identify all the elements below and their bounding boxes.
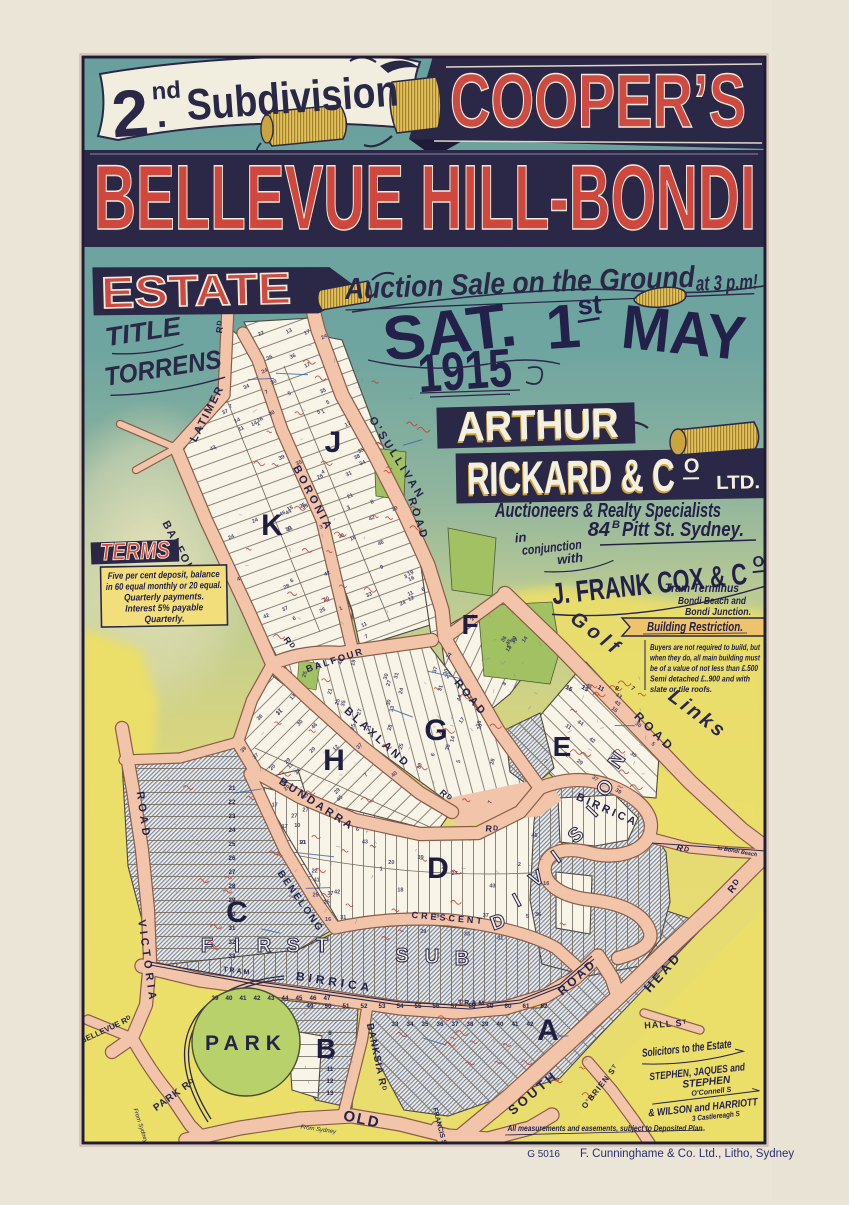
svg-text:27: 27 bbox=[291, 813, 297, 819]
svg-text:2: 2 bbox=[518, 862, 521, 868]
svg-text:57: 57 bbox=[451, 1003, 458, 1010]
svg-text:D: D bbox=[427, 852, 449, 885]
svg-text:U: U bbox=[425, 946, 439, 968]
svg-text:27: 27 bbox=[452, 871, 458, 877]
svg-text:21: 21 bbox=[229, 785, 236, 792]
svg-text:10: 10 bbox=[299, 840, 305, 846]
svg-text:F: F bbox=[461, 609, 478, 640]
svg-text:when they do, all main buildin: when they do, all main building must bbox=[650, 653, 761, 663]
svg-text:25: 25 bbox=[313, 892, 319, 898]
svg-text:61: 61 bbox=[523, 1003, 530, 1010]
svg-text:28: 28 bbox=[229, 883, 236, 890]
svg-text:17: 17 bbox=[282, 824, 288, 830]
svg-text:39: 39 bbox=[418, 855, 424, 861]
svg-text:31: 31 bbox=[497, 935, 503, 941]
svg-text:B: B bbox=[455, 948, 469, 970]
svg-text:I: I bbox=[234, 935, 240, 957]
svg-text:42: 42 bbox=[527, 1021, 534, 1028]
svg-text:O: O bbox=[684, 455, 700, 477]
svg-text:K: K bbox=[261, 509, 283, 542]
svg-text:B: B bbox=[612, 519, 620, 531]
svg-text:st: st bbox=[577, 289, 603, 321]
svg-text:47: 47 bbox=[324, 995, 331, 1002]
svg-text:43: 43 bbox=[268, 995, 275, 1002]
svg-text:17: 17 bbox=[272, 802, 278, 808]
svg-text:54: 54 bbox=[397, 1003, 404, 1010]
svg-text:36: 36 bbox=[437, 1021, 444, 1028]
svg-text:O: O bbox=[752, 553, 766, 571]
svg-text:F. Cunninghame & Co. Ltd., Lit: F. Cunninghame & Co. Ltd., Litho, Sydney bbox=[580, 1148, 794, 1160]
svg-text:29: 29 bbox=[420, 929, 426, 935]
svg-text:53: 53 bbox=[379, 1003, 386, 1010]
svg-text:42: 42 bbox=[334, 889, 340, 895]
svg-text:Semi detached £..900 and with: Semi detached £..900 and with bbox=[650, 674, 750, 684]
svg-text:Bondi Junction.: Bondi Junction. bbox=[685, 606, 751, 618]
svg-text:40: 40 bbox=[226, 995, 233, 1002]
svg-text:38: 38 bbox=[467, 1021, 474, 1028]
svg-text:COOPER’S: COOPER’S bbox=[450, 59, 746, 144]
svg-text:Pitt St. Sydney.: Pitt St. Sydney. bbox=[622, 519, 744, 541]
svg-text:ARTHUR: ARTHUR bbox=[456, 399, 619, 450]
svg-text:36: 36 bbox=[535, 912, 541, 918]
svg-text:S: S bbox=[286, 935, 299, 957]
svg-text:31: 31 bbox=[340, 915, 346, 921]
svg-text:A: A bbox=[537, 1014, 559, 1047]
svg-text:F: F bbox=[201, 935, 213, 957]
svg-text:20: 20 bbox=[388, 860, 394, 866]
svg-text:MAY: MAY bbox=[618, 293, 749, 375]
svg-text:All measurements and easements: All measurements and easements, subject … bbox=[507, 1124, 703, 1133]
svg-text:TRAM: TRAM bbox=[458, 1000, 486, 1008]
svg-text:33: 33 bbox=[392, 1021, 399, 1028]
svg-text:12: 12 bbox=[327, 1078, 334, 1085]
svg-text:27: 27 bbox=[302, 807, 308, 813]
svg-text:LTD.: LTD. bbox=[716, 472, 760, 494]
svg-text:46: 46 bbox=[531, 833, 537, 839]
svg-text:6: 6 bbox=[356, 827, 359, 833]
svg-text:2: 2 bbox=[109, 75, 151, 151]
svg-text:E: E bbox=[553, 731, 572, 762]
svg-text:25: 25 bbox=[324, 899, 330, 905]
svg-text:J: J bbox=[325, 426, 342, 459]
svg-text:59: 59 bbox=[487, 1003, 494, 1010]
svg-text:ESTATE: ESTATE bbox=[100, 264, 291, 318]
svg-text:Tram Terminus: Tram Terminus bbox=[665, 581, 739, 595]
svg-text:52: 52 bbox=[361, 1003, 368, 1010]
svg-text:Building Restriction.: Building Restriction. bbox=[647, 620, 743, 634]
svg-text:49: 49 bbox=[307, 1003, 314, 1010]
svg-text:62: 62 bbox=[541, 1003, 548, 1010]
svg-text:44: 44 bbox=[282, 995, 289, 1002]
svg-text:46: 46 bbox=[310, 995, 317, 1002]
svg-text:56: 56 bbox=[433, 1003, 440, 1010]
svg-text:H: H bbox=[323, 744, 345, 777]
svg-text:PARK: PARK bbox=[205, 1032, 287, 1055]
svg-text:G: G bbox=[424, 714, 447, 747]
svg-text:35: 35 bbox=[422, 1021, 429, 1028]
svg-text:51: 51 bbox=[343, 1003, 350, 1010]
svg-text:40: 40 bbox=[497, 1021, 504, 1028]
svg-text:25: 25 bbox=[229, 841, 236, 848]
svg-text:60: 60 bbox=[505, 1003, 512, 1010]
svg-text:13: 13 bbox=[327, 1090, 334, 1097]
svg-text:41: 41 bbox=[512, 1021, 519, 1028]
svg-text:Buyers are not required to bui: Buyers are not required to build, but bbox=[650, 642, 761, 652]
svg-text:22: 22 bbox=[229, 799, 236, 806]
svg-text:42: 42 bbox=[254, 995, 261, 1002]
svg-text:C: C bbox=[226, 896, 248, 929]
svg-text:Interest 5% payable: Interest 5% payable bbox=[125, 602, 204, 614]
svg-text:11: 11 bbox=[327, 1066, 334, 1073]
svg-text:24: 24 bbox=[229, 827, 236, 834]
svg-text:10: 10 bbox=[294, 823, 300, 829]
svg-text:41: 41 bbox=[314, 877, 320, 883]
svg-text:with: with bbox=[556, 550, 583, 568]
svg-text:84: 84 bbox=[588, 519, 610, 541]
svg-text:23: 23 bbox=[229, 813, 236, 820]
svg-text:B: B bbox=[316, 1033, 336, 1064]
svg-text:26: 26 bbox=[229, 855, 236, 862]
svg-text:18: 18 bbox=[397, 887, 403, 893]
svg-text:Quarterly.: Quarterly. bbox=[144, 614, 184, 626]
svg-text:be of a value of not less than: be of a value of not less than £.500 bbox=[650, 663, 758, 673]
svg-text:55: 55 bbox=[415, 1003, 422, 1010]
svg-text:TERMS: TERMS bbox=[99, 537, 170, 566]
svg-text:5: 5 bbox=[526, 914, 529, 920]
svg-text:39: 39 bbox=[482, 1021, 489, 1028]
svg-text:50: 50 bbox=[325, 1003, 332, 1010]
svg-text:33: 33 bbox=[464, 931, 470, 937]
svg-text:RICKARD & C: RICKARD & C bbox=[467, 449, 676, 505]
svg-text:37: 37 bbox=[452, 1021, 459, 1028]
svg-text:27: 27 bbox=[229, 869, 236, 876]
svg-text:43: 43 bbox=[362, 839, 368, 845]
svg-text:1: 1 bbox=[380, 867, 383, 873]
svg-text:R: R bbox=[257, 935, 272, 957]
svg-text:S: S bbox=[395, 945, 408, 967]
svg-text:45: 45 bbox=[296, 995, 303, 1002]
svg-text:39: 39 bbox=[212, 995, 219, 1002]
svg-text:BELLEVUE HILL-BONDI: BELLEVUE HILL-BONDI bbox=[94, 147, 756, 249]
svg-text:G 5016: G 5016 bbox=[527, 1149, 560, 1160]
svg-text:43: 43 bbox=[489, 883, 495, 889]
svg-text:41: 41 bbox=[240, 995, 247, 1002]
svg-text:T: T bbox=[316, 935, 328, 957]
svg-text:16: 16 bbox=[325, 917, 331, 923]
